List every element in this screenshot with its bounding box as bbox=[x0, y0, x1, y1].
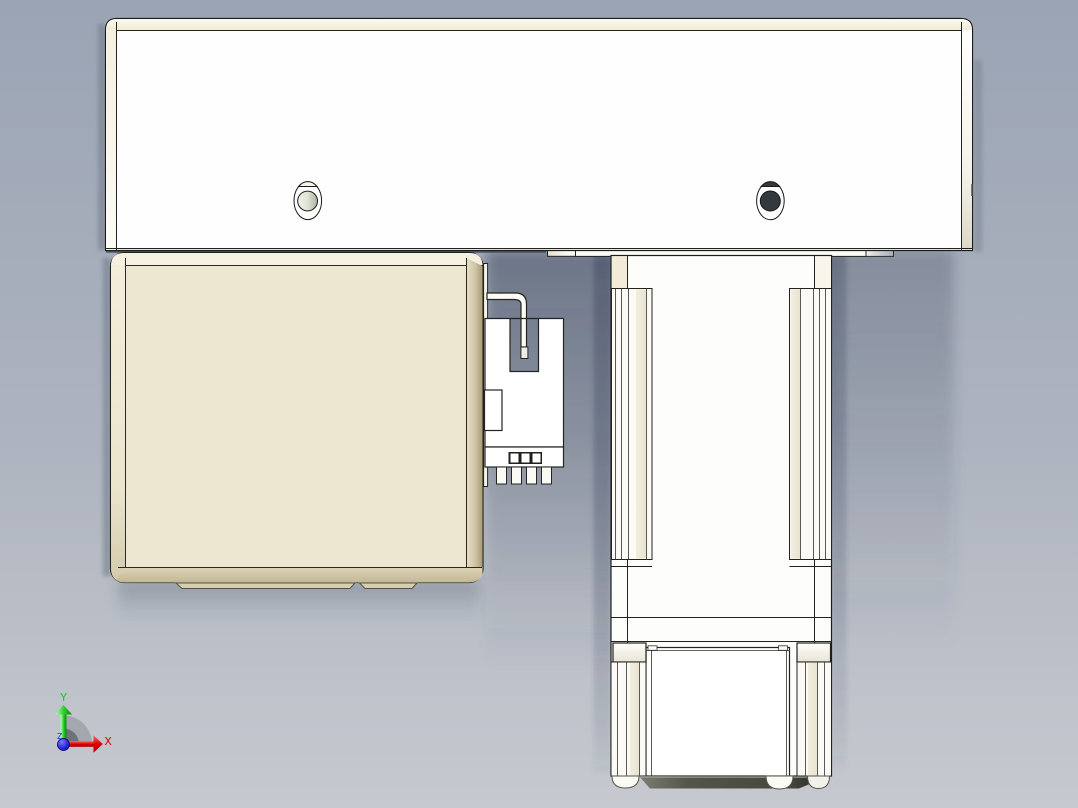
svg-text:Y: Y bbox=[60, 691, 67, 705]
svg-text:X: X bbox=[105, 735, 112, 749]
